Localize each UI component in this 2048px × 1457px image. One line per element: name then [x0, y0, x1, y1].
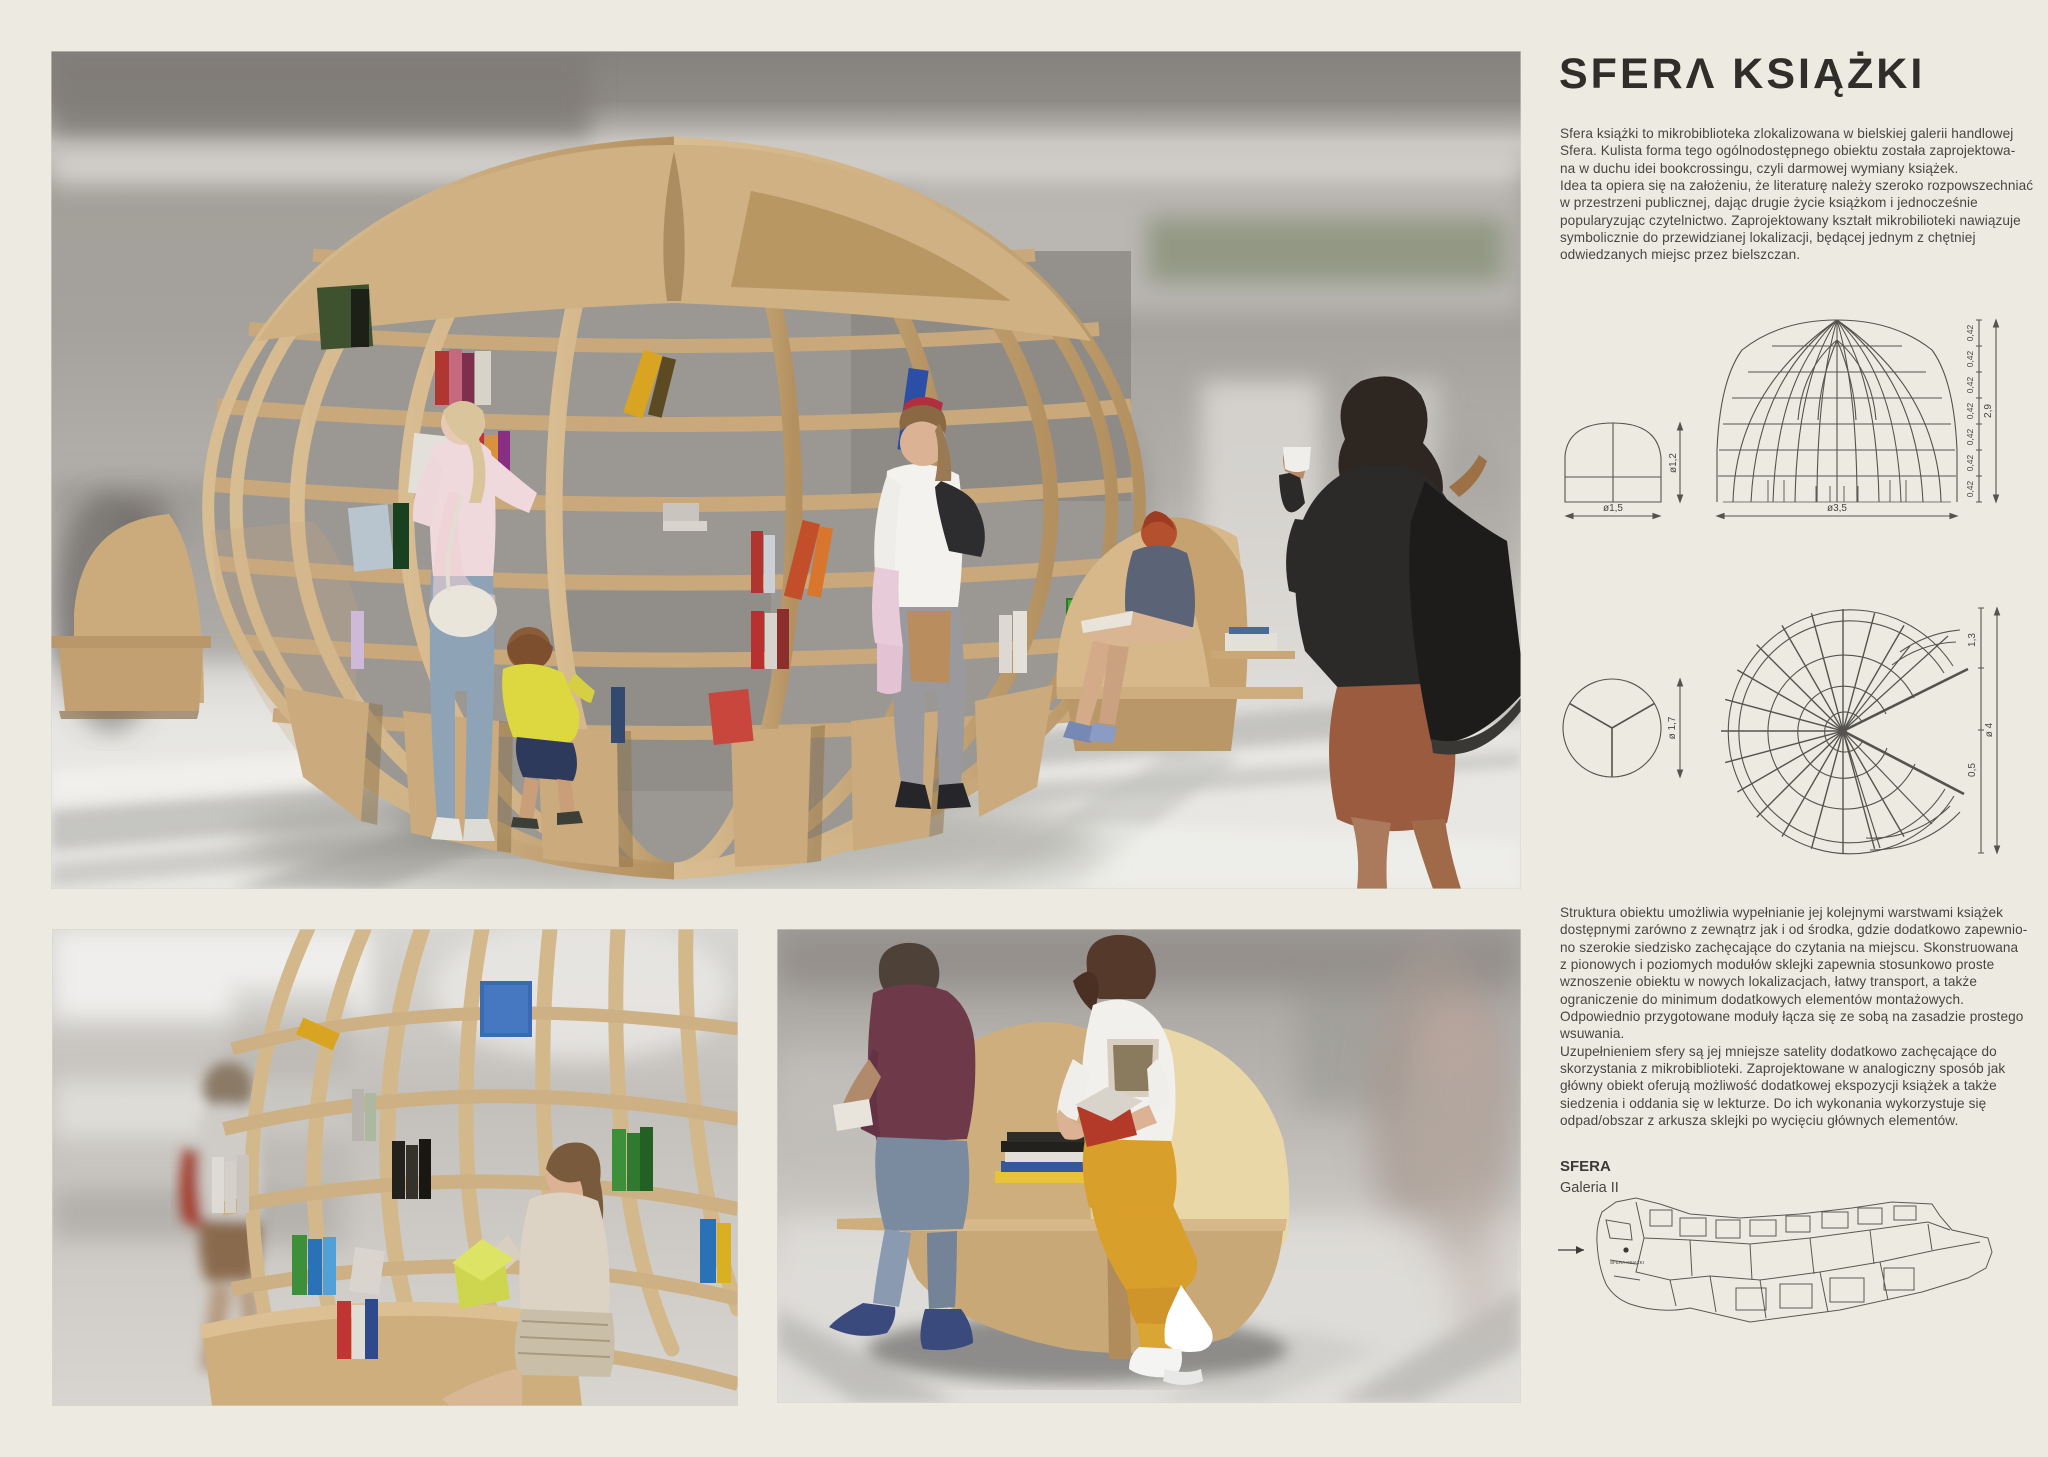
svg-text:ø 1,7: ø 1,7 [1667, 716, 1678, 739]
svg-text:ø3,5: ø3,5 [1827, 503, 1847, 514]
svg-text:0,42: 0,42 [1965, 376, 1975, 393]
svg-text:ø 4: ø 4 [1984, 722, 1995, 737]
svg-text:0,42: 0,42 [1965, 480, 1975, 497]
svg-text:0,42: 0,42 [1965, 324, 1975, 341]
svg-text:SFERA KSIĄŻKI: SFERA KSIĄŻKI [1610, 1259, 1644, 1265]
svg-text:0,42: 0,42 [1965, 454, 1975, 471]
svg-text:ø1,2: ø1,2 [1668, 453, 1679, 473]
svg-text:ø1,5: ø1,5 [1603, 503, 1623, 514]
svg-text:0,42: 0,42 [1965, 402, 1975, 419]
svg-text:2,9: 2,9 [1983, 404, 1994, 418]
svg-text:0,5: 0,5 [1967, 763, 1978, 777]
svg-text:0,42: 0,42 [1965, 428, 1975, 445]
svg-text:1,3: 1,3 [1967, 633, 1978, 647]
svg-text:0,42: 0,42 [1965, 350, 1975, 367]
